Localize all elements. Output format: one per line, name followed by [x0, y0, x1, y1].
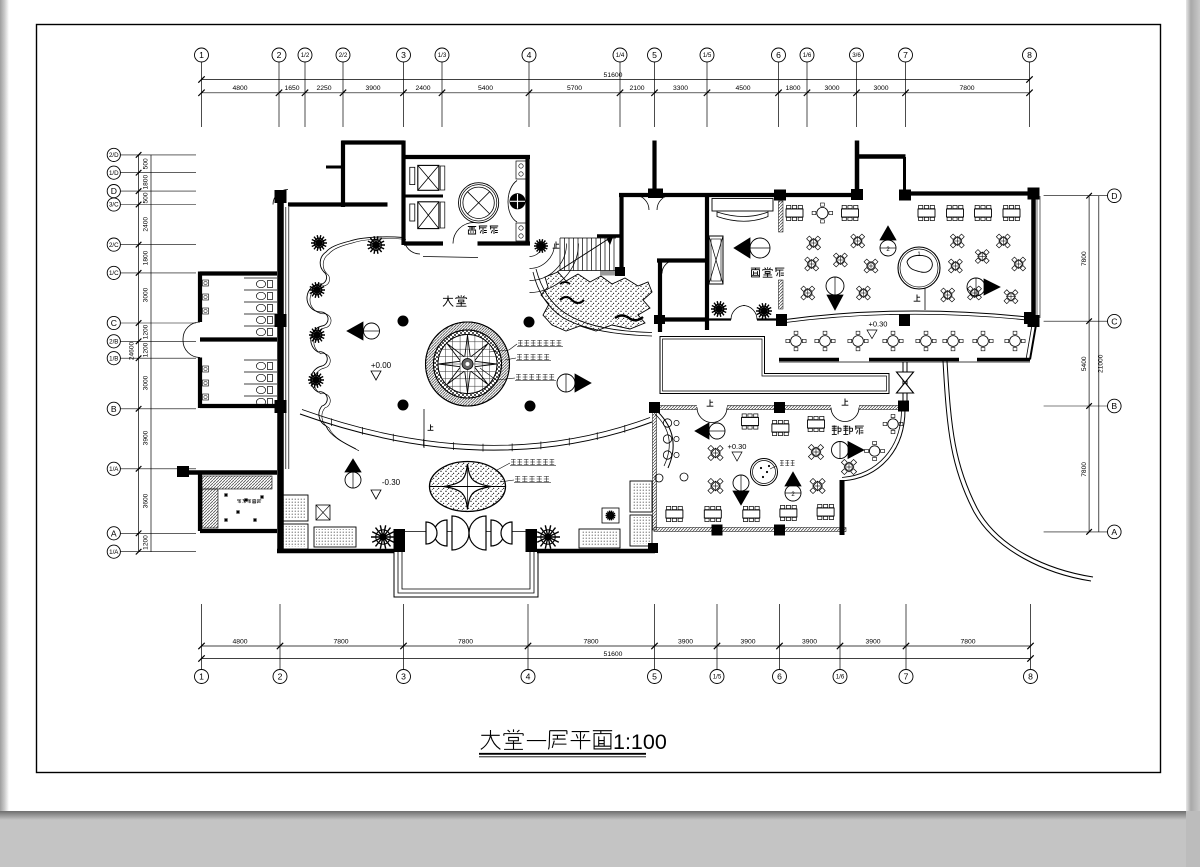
svg-text:3900: 3900: [865, 638, 880, 645]
svg-text:5400: 5400: [1081, 356, 1088, 371]
svg-text:2400: 2400: [143, 217, 150, 232]
svg-text:7800: 7800: [959, 85, 974, 92]
svg-text:1/A: 1/A: [109, 466, 119, 473]
svg-text:4: 4: [526, 672, 531, 682]
svg-text:24600: 24600: [129, 342, 136, 361]
svg-text:1/C: 1/C: [109, 270, 119, 277]
svg-text:1800: 1800: [143, 250, 150, 265]
svg-text:1/5: 1/5: [713, 674, 722, 681]
svg-text:C: C: [111, 318, 117, 328]
svg-text:D: D: [1111, 191, 1117, 201]
svg-text:2/2: 2/2: [339, 52, 348, 59]
svg-text:5: 5: [652, 50, 657, 60]
svg-text:6: 6: [776, 50, 781, 60]
svg-text:2: 2: [278, 672, 283, 682]
svg-text:3900: 3900: [365, 85, 380, 92]
svg-text:D: D: [111, 186, 117, 196]
svg-text:1:100: 1:100: [613, 730, 667, 754]
svg-text:C: C: [1111, 316, 1117, 326]
svg-text:1800: 1800: [143, 175, 150, 190]
svg-text:A: A: [111, 528, 117, 538]
svg-text:3900: 3900: [143, 430, 150, 445]
svg-text:8: 8: [1027, 50, 1032, 60]
svg-text:8: 8: [1028, 672, 1033, 682]
svg-text:4800: 4800: [232, 638, 247, 645]
svg-text:5400: 5400: [478, 85, 493, 92]
svg-text:+0.00: +0.00: [371, 361, 392, 370]
svg-text:6: 6: [777, 672, 782, 682]
svg-text:3/6: 3/6: [852, 52, 861, 59]
svg-text:7: 7: [903, 50, 908, 60]
svg-text:3: 3: [401, 672, 406, 682]
svg-text:+0.30: +0.30: [869, 320, 888, 329]
svg-text:1/4: 1/4: [616, 52, 625, 59]
svg-text:3000: 3000: [873, 85, 888, 92]
svg-text:3900: 3900: [678, 638, 693, 645]
svg-text:500: 500: [143, 192, 150, 203]
svg-text:7800: 7800: [333, 638, 348, 645]
svg-text:21000: 21000: [1098, 354, 1105, 373]
svg-text:1650: 1650: [284, 85, 299, 92]
svg-text:3: 3: [401, 50, 406, 60]
svg-text:4800: 4800: [232, 85, 247, 92]
svg-text:1/6: 1/6: [836, 674, 845, 681]
svg-text:2100: 2100: [629, 85, 644, 92]
svg-text:7800: 7800: [1081, 251, 1088, 266]
svg-text:3000: 3000: [143, 375, 150, 390]
svg-text:1800: 1800: [785, 85, 800, 92]
svg-text:B: B: [1111, 401, 1117, 411]
svg-text:2: 2: [277, 50, 282, 60]
svg-text:2250: 2250: [316, 85, 331, 92]
svg-text:1/3: 1/3: [438, 52, 447, 59]
svg-text:7: 7: [904, 672, 909, 682]
svg-text:1/B: 1/B: [109, 355, 118, 362]
svg-text:1/2: 1/2: [301, 52, 310, 59]
svg-text:5700: 5700: [567, 85, 582, 92]
svg-text:7800: 7800: [458, 638, 473, 645]
svg-text:3600: 3600: [143, 493, 150, 508]
svg-text:51600: 51600: [604, 72, 623, 79]
svg-text:-0.30: -0.30: [382, 478, 401, 487]
svg-text:4500: 4500: [735, 85, 750, 92]
svg-text:3/C: 3/C: [109, 202, 119, 209]
svg-text:3300: 3300: [673, 85, 688, 92]
svg-text:A: A: [1111, 527, 1117, 537]
svg-text:3900: 3900: [802, 638, 817, 645]
svg-text:3900: 3900: [740, 638, 755, 645]
svg-text:1200: 1200: [143, 535, 150, 550]
svg-text:1200: 1200: [143, 324, 150, 339]
svg-text:+0.30: +0.30: [728, 442, 747, 451]
svg-text:3000: 3000: [143, 287, 150, 302]
svg-text:B: B: [111, 404, 117, 414]
svg-text:1/A: 1/A: [109, 549, 119, 556]
svg-text:7800: 7800: [1081, 462, 1088, 477]
svg-text:2400: 2400: [415, 85, 430, 92]
svg-text:5: 5: [652, 672, 657, 682]
svg-text:2/B: 2/B: [109, 339, 118, 346]
svg-text:2/D: 2/D: [109, 152, 119, 159]
svg-text:7800: 7800: [583, 638, 598, 645]
svg-text:500: 500: [143, 158, 150, 169]
svg-text:1200: 1200: [143, 342, 150, 357]
svg-text:4: 4: [527, 50, 532, 60]
svg-text:1/5: 1/5: [703, 52, 712, 59]
svg-text:1/6: 1/6: [803, 52, 812, 59]
svg-text:51600: 51600: [604, 651, 623, 658]
svg-text:1: 1: [199, 672, 204, 682]
svg-text:2/C: 2/C: [109, 242, 119, 249]
svg-text:3000: 3000: [824, 85, 839, 92]
svg-text:7800: 7800: [960, 638, 975, 645]
svg-text:1/D: 1/D: [109, 170, 119, 177]
svg-text:1: 1: [199, 50, 204, 60]
